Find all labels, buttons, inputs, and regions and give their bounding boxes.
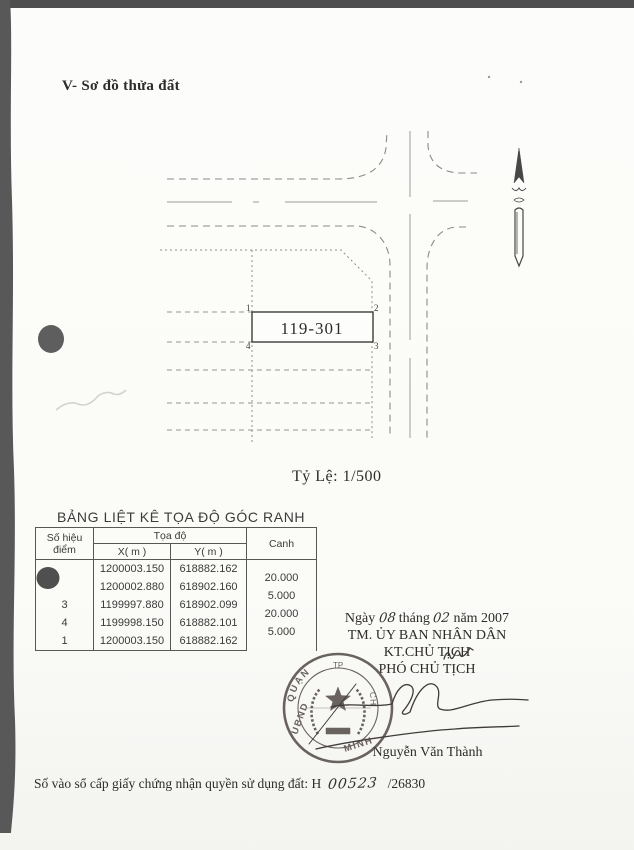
signing-title-line: KT.CHỦ TỊCH bbox=[318, 645, 536, 661]
y-value: 618902.099 bbox=[171, 596, 247, 614]
date-line: Ngày 08 tháng 02 năm 2007 bbox=[318, 611, 536, 627]
col-header-y: Y( m ) bbox=[171, 544, 247, 560]
section-title: V- Sơ đồ thửa đất bbox=[62, 78, 180, 95]
handwritten-month: 02 bbox=[433, 611, 451, 628]
y-value: 618882.101 bbox=[171, 614, 247, 632]
corner-label: 2 bbox=[374, 303, 379, 313]
y-value: 618882.162 bbox=[171, 632, 247, 651]
handwritten-registry-number: 00523 bbox=[327, 775, 378, 793]
edge-value: 20.000 bbox=[247, 569, 316, 587]
y-value: 618882.162 bbox=[171, 560, 247, 579]
x-value: 1200002.880 bbox=[94, 578, 171, 596]
edge-values-cell: 20.000 5.000 20.000 5.000 bbox=[247, 560, 317, 651]
parcel-corner-labels: 1 2 3 4 bbox=[246, 303, 379, 351]
y-value: 618902.160 bbox=[171, 578, 247, 596]
handwritten-day: 08 bbox=[378, 611, 396, 628]
scanned-document-page: V- Sơ đồ thửa đất Tỷ Lệ: 1/500 BẢNG LIỆT… bbox=[0, 0, 634, 850]
x-value: 1200003.150 bbox=[94, 632, 171, 651]
corner-label: 4 bbox=[246, 341, 251, 351]
registry-line: Số vào sổ cấp giấy chứng nhận quyền sử d… bbox=[34, 776, 425, 792]
edge-value: 5.000 bbox=[247, 623, 316, 641]
point-id: 4 bbox=[36, 614, 94, 632]
parcel-outline bbox=[252, 312, 373, 342]
subdivision-lines bbox=[167, 312, 372, 430]
committee-line: TM. ỦY BAN NHÂN DÂN bbox=[318, 628, 536, 644]
point-id: 1 bbox=[36, 632, 94, 651]
signer-name: Nguyễn Văn Thành bbox=[330, 745, 525, 761]
col-header-x: X( m ) bbox=[94, 544, 171, 560]
corner-label: 3 bbox=[374, 341, 379, 351]
x-value: 1199997.880 bbox=[94, 596, 171, 614]
point-id bbox=[36, 560, 94, 579]
corner-label: 1 bbox=[246, 303, 251, 313]
seal-arc-text: QUẬN bbox=[285, 666, 313, 703]
scan-edge-top bbox=[0, 0, 634, 8]
col-header-point: Số hiệuđiểm bbox=[36, 528, 94, 560]
ink-smudge bbox=[56, 390, 126, 410]
scan-artifacts bbox=[0, 0, 634, 833]
seal-star-icon bbox=[326, 687, 351, 711]
table-row: 1200003.150 618882.162 20.000 5.000 20.0… bbox=[36, 560, 317, 579]
scan-edge-left bbox=[0, 0, 15, 833]
graphics-overlay: 119-301 1 2 3 4 bbox=[0, 0, 634, 850]
coordinate-table: Số hiệuđiểm Tọa độ Canh X( m ) Y( m ) 12… bbox=[35, 527, 317, 651]
col-header-coords: Tọa độ bbox=[94, 528, 247, 544]
punch-hole bbox=[38, 325, 64, 353]
point-id bbox=[36, 578, 94, 596]
north-arrow-icon bbox=[512, 148, 526, 266]
road-centerlines bbox=[167, 131, 468, 438]
col-header-edge: Canh bbox=[247, 528, 317, 560]
cadastral-diagram: 119-301 1 2 3 4 bbox=[160, 131, 526, 445]
deputy-title-line: PHÓ CHỦ TỊCH bbox=[318, 662, 536, 678]
coordinate-table-title: BẢNG LIỆT KÊ TỌA ĐỘ GÓC RANH bbox=[57, 509, 305, 525]
scale-label: Tỷ Lệ: 1/500 bbox=[292, 468, 382, 486]
seal-side-text: CH bbox=[368, 692, 378, 707]
x-value: 1200003.150 bbox=[94, 560, 171, 579]
signature-block: Ngày 08 tháng 02 năm 2007 TM. ỦY BAN NHÂ… bbox=[318, 611, 536, 679]
edge-value: 20.000 bbox=[247, 605, 316, 623]
svg-text:QUẬN: QUẬN bbox=[285, 666, 313, 703]
point-id: 3 bbox=[36, 596, 94, 614]
edge-value: 5.000 bbox=[247, 587, 316, 605]
parcel-number: 119-301 bbox=[280, 319, 343, 338]
seal-left-text: UBND bbox=[289, 701, 311, 736]
x-value: 1199998.150 bbox=[94, 614, 171, 632]
